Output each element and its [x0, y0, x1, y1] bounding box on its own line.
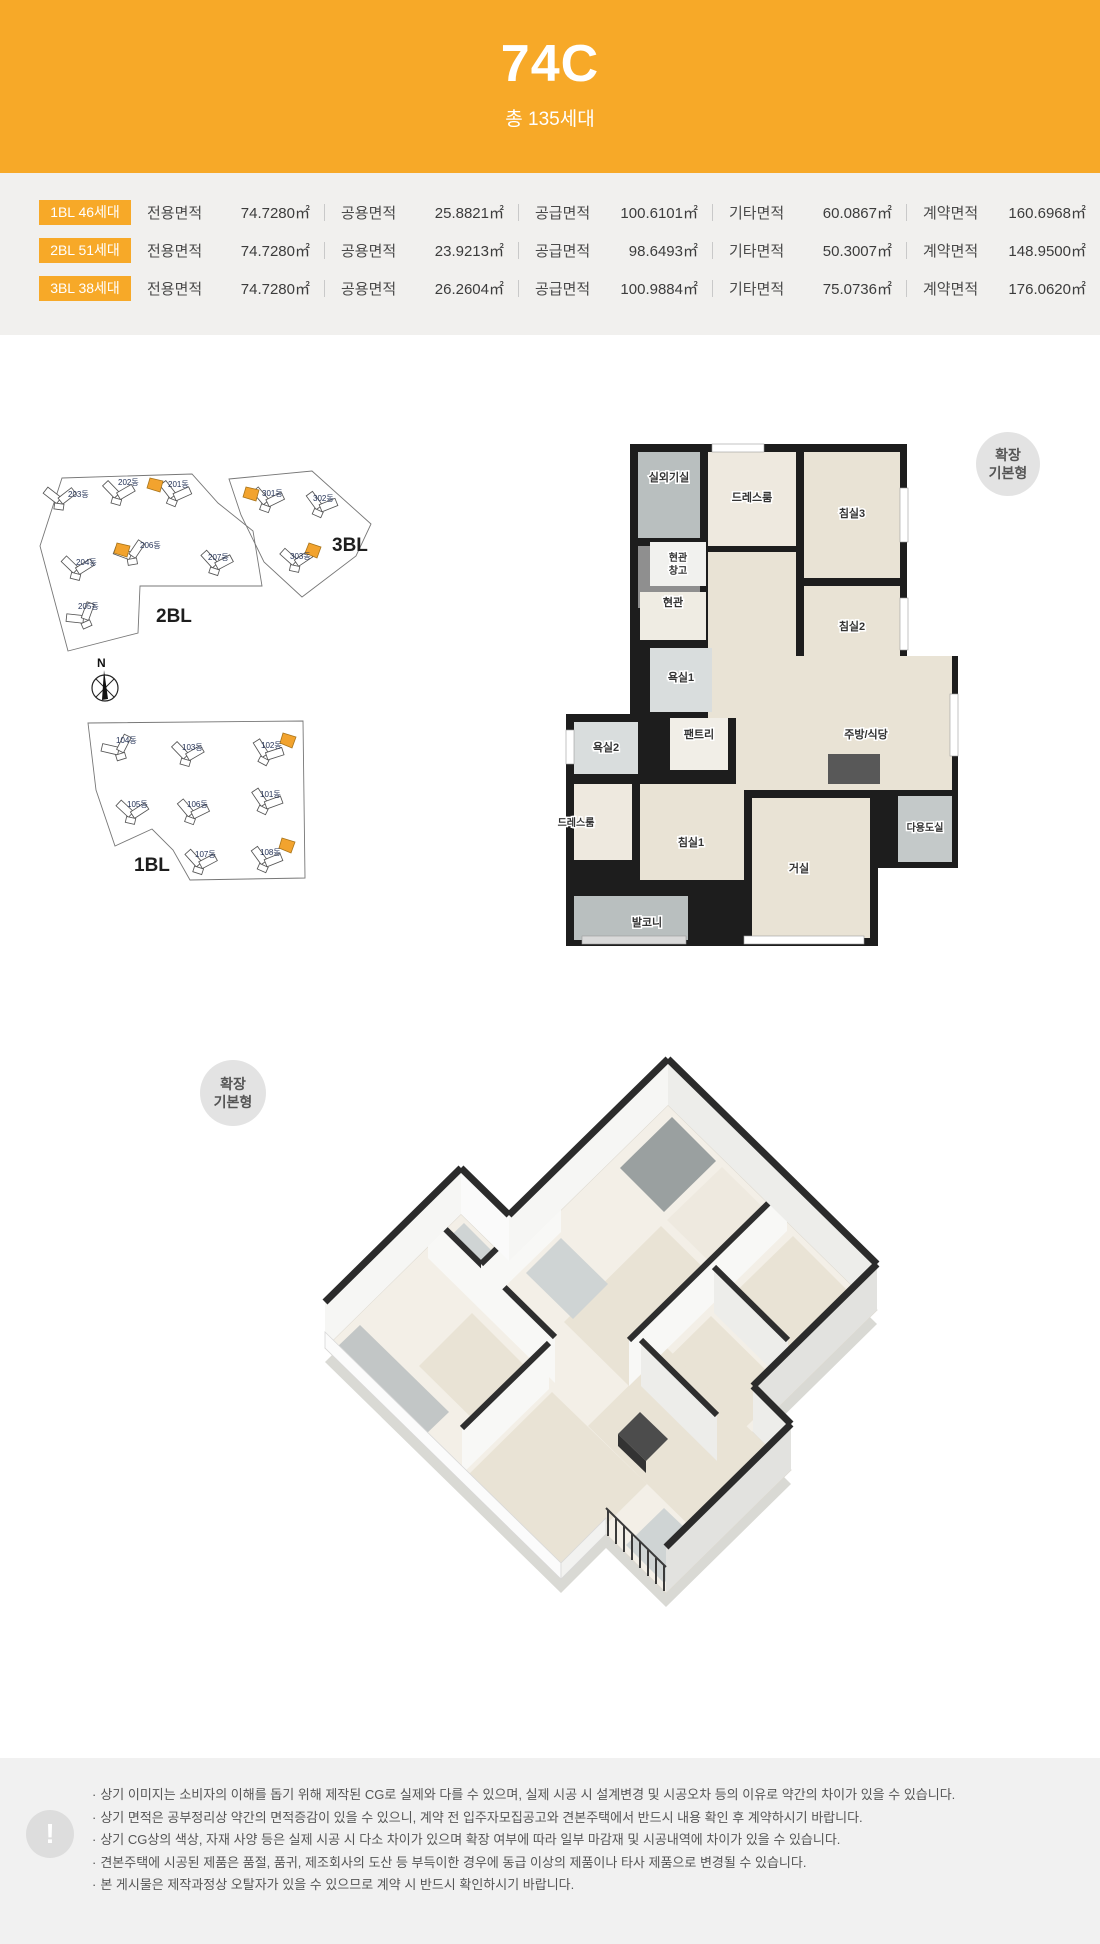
block-label-2bl: 2BL [156, 606, 192, 627]
disclaimer-item: ·상기 CG상의 색상, 자재 사양 등은 실제 시공 시 다소 차이가 있으며… [92, 1829, 1072, 1852]
room-label-entry-storage-1: 현관 [669, 551, 688, 564]
room-label-balcony: 발코니 [632, 915, 662, 929]
disclaimer-text: 상기 면적은 공부정리상 약간의 면적증감이 있을 수 있으니, 계약 전 입주… [100, 1810, 862, 1825]
exclamation-icon: ! [26, 1810, 74, 1858]
disclaimer-text: 상기 이미지는 소비자의 이해를 돕기 위해 제작된 CG로 실제와 다를 수 … [100, 1787, 955, 1802]
disclaimer-item: ·본 게시물은 제작과정상 오탈자가 있을 수 있으므로 계약 시 반드시 확인… [92, 1874, 1072, 1897]
room-bedroom1 [640, 784, 744, 880]
room-label-bedroom1: 침실1 [678, 835, 704, 849]
window [582, 936, 686, 944]
building-label: 106동 [187, 800, 208, 809]
plans-canvas: 203동 202동 201동 206동 204동 207동 205동 301동 … [0, 0, 1100, 1944]
disclaimer-item: ·상기 면적은 공부정리상 약간의 면적증감이 있을 수 있으니, 계약 전 입… [92, 1807, 1072, 1830]
room-label-bedroom3: 침실3 [839, 506, 865, 520]
window [566, 730, 574, 764]
kitchen-island [828, 754, 880, 784]
badge-line-2: 기본형 [214, 1093, 253, 1111]
highlight-unit-201 [147, 478, 163, 492]
building-label: 108동 [260, 848, 281, 857]
badge-line-1: 확장 [220, 1075, 246, 1093]
badge-line-2: 기본형 [989, 464, 1028, 482]
room-label-kitchen: 주방/식당 [844, 727, 888, 741]
room-label-entry-storage-2: 창고 [669, 564, 687, 577]
bullet: · [92, 1810, 96, 1825]
building-label: 102동 [261, 741, 282, 750]
building-label: 207동 [208, 553, 229, 562]
window [712, 444, 764, 452]
building-label: 105동 [127, 800, 148, 809]
bullet: · [92, 1877, 96, 1892]
building-label: 107동 [195, 850, 216, 859]
building-label: 103동 [182, 743, 203, 752]
window [950, 694, 958, 756]
building-label: 303동 [290, 552, 311, 561]
block-label-3bl: 3BL [332, 535, 368, 556]
building-label: 204동 [76, 558, 97, 567]
floor-plan-2d: 실외기실 드레스룸 침실3 현관 창고 현관 침실2 욕실1 욕실2 팬트리 주… [558, 444, 958, 946]
room-label-pantry: 팬트리 [684, 727, 714, 741]
unit-type-page: 74C 총 135세대 1BL 46세대 전용면적74.7280㎡ 공용면적25… [0, 0, 1100, 1944]
floor-plan-3d [325, 1059, 877, 1607]
badge-line-1: 확장 [995, 446, 1021, 464]
building-label: 201동 [168, 480, 189, 489]
room-pantry [670, 718, 728, 770]
room-label-utility: 다용도실 [907, 821, 944, 834]
building-label: 302동 [313, 494, 334, 503]
window [900, 488, 908, 542]
room-label-outdoor-unit: 실외기실 [649, 470, 689, 484]
room-label-bathroom2: 욕실2 [593, 740, 619, 754]
window [744, 936, 864, 944]
bullet: · [92, 1855, 96, 1870]
room-label-dressroom-left: 드레스룸 [558, 816, 595, 829]
building-label: 301동 [262, 489, 283, 498]
disclaimer-list: ·상기 이미지는 소비자의 이해를 돕기 위해 제작된 CG로 실제와 다를 수… [92, 1784, 1072, 1897]
room-outdoor-unit [638, 452, 700, 538]
plan-2d-badge: 확장 기본형 [976, 432, 1040, 496]
bullet: · [92, 1832, 96, 1847]
building-label: 203동 [68, 490, 89, 499]
bullet: · [92, 1787, 96, 1802]
highlight-unit-108 [279, 838, 295, 853]
highlighted-units [114, 478, 321, 853]
building-label: 202동 [118, 478, 139, 487]
room-entry-storage [650, 542, 706, 586]
room-label-entrance: 현관 [663, 595, 683, 609]
building-label: 104동 [116, 736, 137, 745]
window [900, 598, 908, 650]
disclaimer-item: ·견본주택에 시공된 제품은 품절, 품귀, 제조회사의 도산 등 부득이한 경… [92, 1852, 1072, 1875]
highlight-unit-301 [243, 487, 259, 501]
highlight-unit-102 [280, 733, 296, 748]
room-label-living: 거실 [789, 861, 809, 875]
compass-north-label: N [97, 656, 106, 670]
disclaimer-section: ! ·상기 이미지는 소비자의 이해를 돕기 위해 제작된 CG로 실제와 다를… [0, 1758, 1100, 1944]
disclaimer-text: 견본주택에 시공된 제품은 품절, 품귀, 제조회사의 도산 등 부득이한 경우… [100, 1855, 806, 1870]
block-label-1bl: 1BL [134, 855, 170, 876]
building-label: 205동 [78, 602, 99, 611]
room-living [752, 798, 870, 938]
compass: N [92, 656, 118, 701]
building-label: 101동 [260, 790, 281, 799]
room-label-bathroom1: 욕실1 [668, 670, 694, 684]
room-label-dressroom-top: 드레스룸 [732, 490, 772, 504]
disclaimer-text: 본 게시물은 제작과정상 오탈자가 있을 수 있으므로 계약 시 반드시 확인하… [100, 1877, 574, 1892]
disclaimer-item: ·상기 이미지는 소비자의 이해를 돕기 위해 제작된 CG로 실제와 다를 수… [92, 1784, 1072, 1807]
site-plan: 203동 202동 201동 206동 204동 207동 205동 301동 … [40, 471, 371, 880]
disclaimer-text: 상기 CG상의 색상, 자재 사양 등은 실제 시공 시 다소 차이가 있으며 … [100, 1832, 840, 1847]
plan-3d-badge: 확장 기본형 [200, 1060, 266, 1126]
room-label-bedroom2: 침실2 [839, 619, 865, 633]
building-label: 206동 [140, 541, 161, 550]
